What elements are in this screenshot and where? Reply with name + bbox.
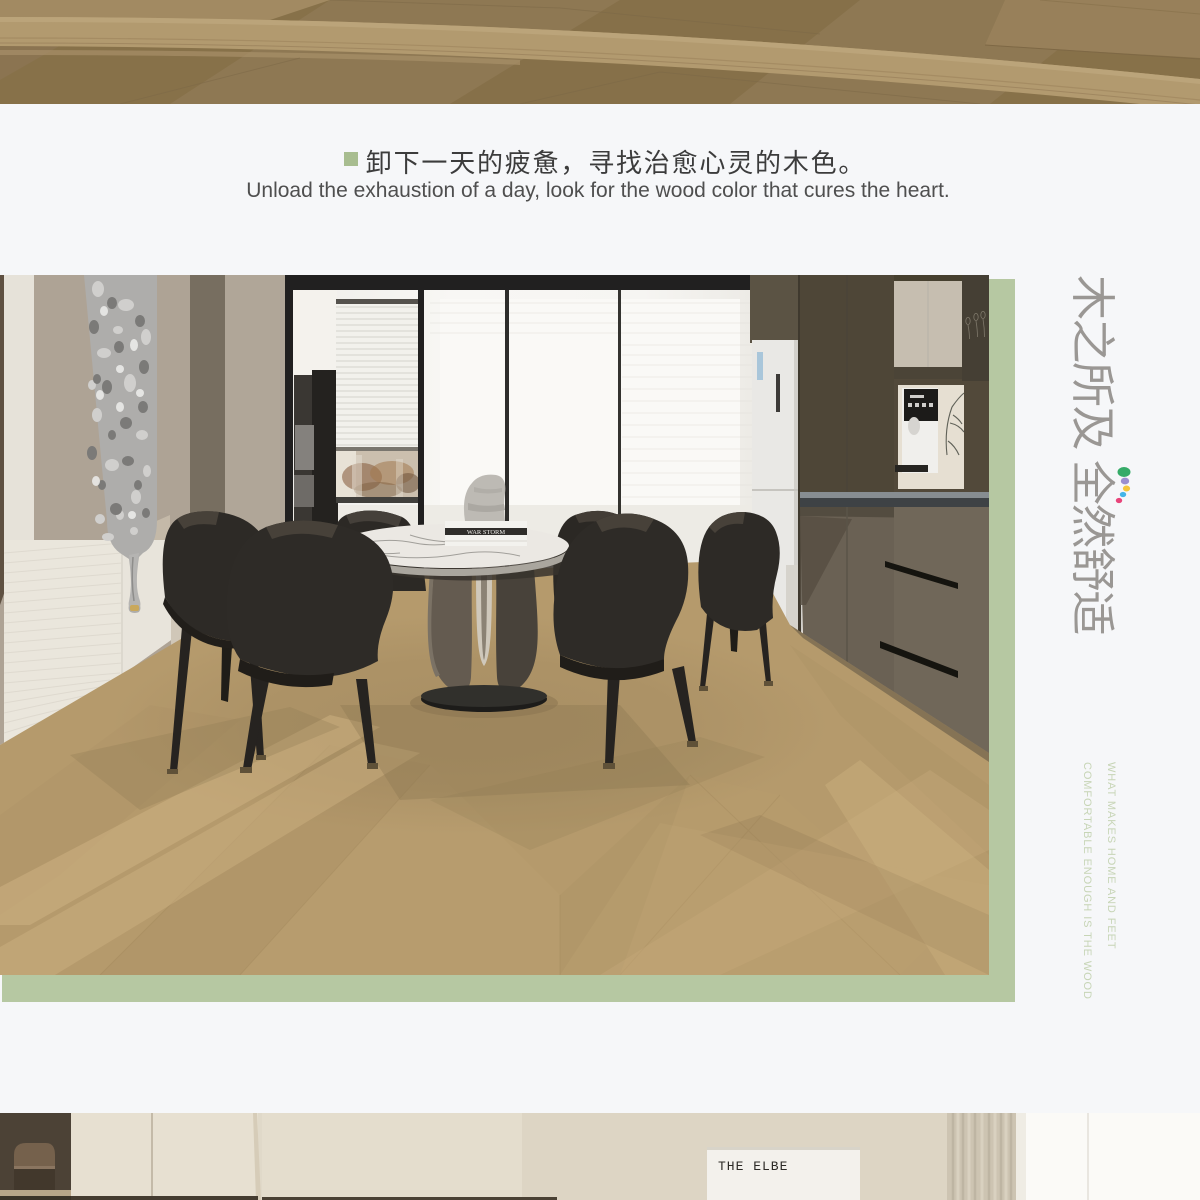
svg-text:WAR STORM: WAR STORM xyxy=(467,529,506,536)
svg-text:THE ELBE: THE ELBE xyxy=(718,1159,788,1174)
